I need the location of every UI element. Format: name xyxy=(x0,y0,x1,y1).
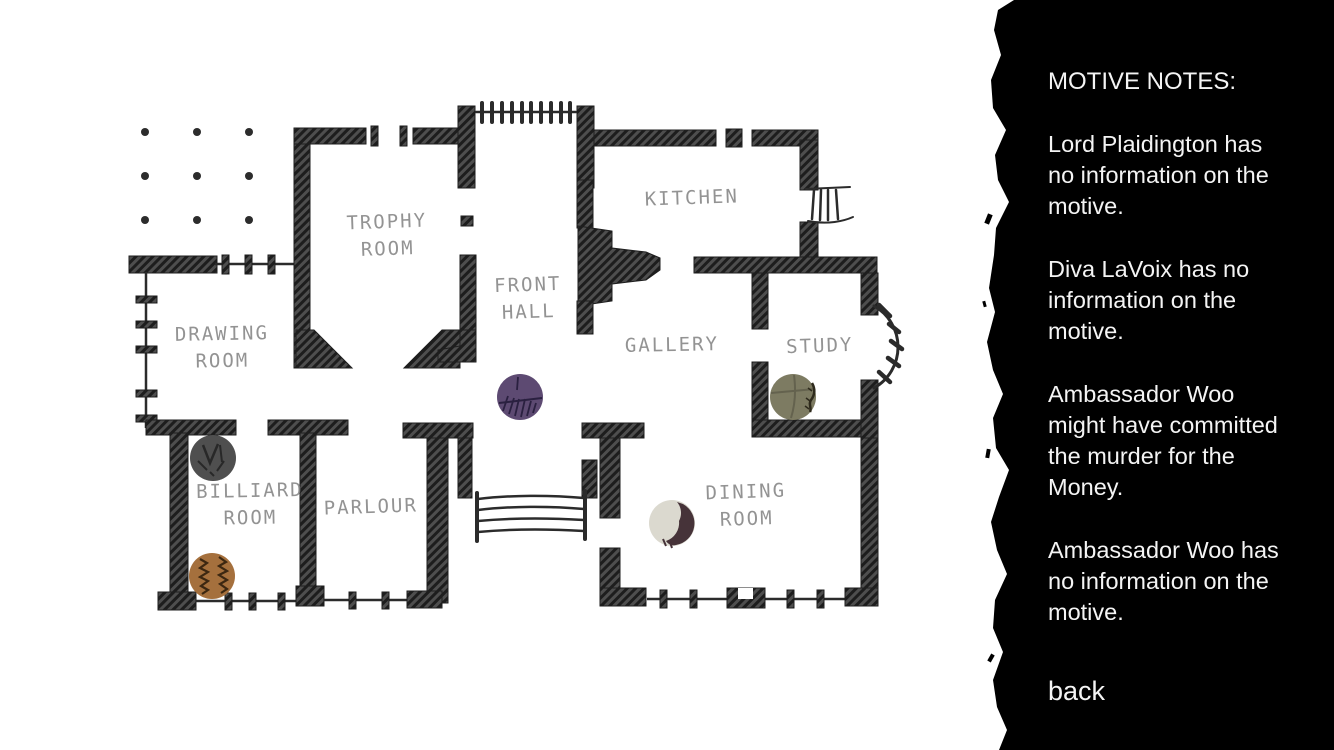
token-gray[interactable] xyxy=(190,435,236,481)
token-cream[interactable] xyxy=(649,500,695,548)
back-stairs xyxy=(806,187,853,223)
notes-panel: MOTIVE NOTES: Lord Plaidington has no in… xyxy=(980,0,1334,750)
motive-note-2: Diva LaVoix has no information on the mo… xyxy=(1048,254,1314,347)
room-label-parlour: PARLOUR xyxy=(323,494,418,519)
front-porch-steps xyxy=(476,103,576,122)
motive-note-1: Lord Plaidington has no information on t… xyxy=(1048,129,1314,222)
motive-note-3: Ambassador Woo might have committed the … xyxy=(1048,379,1314,503)
room-label-kitchen: KITCHEN xyxy=(644,185,739,210)
notes-title: MOTIVE NOTES: xyxy=(1048,66,1314,97)
game-screen: TROPHYROOMKITCHENFRONTHALLDRAWINGROOMGAL… xyxy=(0,0,1334,750)
terrace-columns xyxy=(141,128,253,224)
token-purple[interactable] xyxy=(497,374,543,420)
motive-note-4: Ambassador Woo has no information on the… xyxy=(1048,535,1314,628)
room-label-drawing-room: DRAWINGROOM xyxy=(175,322,270,373)
token-olive[interactable] xyxy=(770,374,816,420)
room-labels: TROPHYROOMKITCHENFRONTHALLDRAWINGROOMGAL… xyxy=(175,185,854,531)
mansion-floorplan: TROPHYROOMKITCHENFRONTHALLDRAWINGROOMGAL… xyxy=(0,0,1000,750)
study-bay-window xyxy=(874,305,902,388)
room-label-trophy-room: TROPHYROOM xyxy=(346,210,428,262)
room-label-study: STUDY xyxy=(786,334,854,358)
token-brown[interactable] xyxy=(189,553,235,599)
room-label-billiard-room: BILLIARDROOM xyxy=(196,479,304,530)
back-button[interactable]: back xyxy=(1048,675,1105,707)
room-label-gallery: GALLERY xyxy=(625,333,719,357)
room-label-front-hall: FRONTHALL xyxy=(494,273,563,324)
main-staircase xyxy=(477,491,585,541)
room-label-dining-room: DININGROOM xyxy=(705,480,787,532)
